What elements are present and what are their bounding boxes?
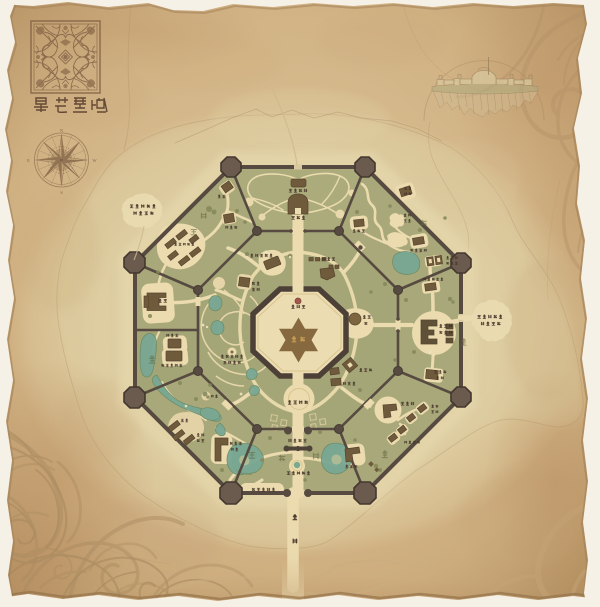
svg-text:E: E [27, 158, 30, 163]
